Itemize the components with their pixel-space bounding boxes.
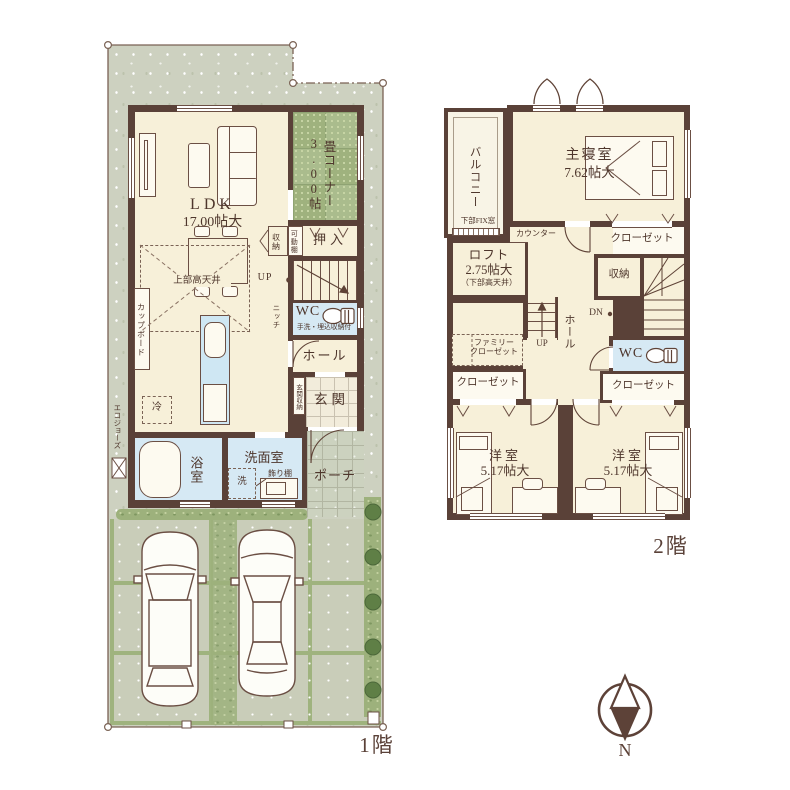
porch-apron xyxy=(307,508,364,517)
wc-note-label: 手洗・埋込収納付 xyxy=(291,324,357,332)
room-size: 7.62帖大 xyxy=(532,165,647,181)
niche-label: ニッチ xyxy=(271,300,280,334)
opening xyxy=(288,341,293,367)
fridge-label: 冷 xyxy=(148,402,166,414)
compass-north-label: N xyxy=(610,740,640,761)
closet-master-label: クローゼット xyxy=(606,233,678,245)
high-ceiling-label: 上部高天井 xyxy=(163,276,231,287)
coffee-table xyxy=(188,143,210,188)
room-name: 洋室 xyxy=(578,448,678,463)
closet-west-label: クローゼット xyxy=(456,377,520,389)
entrance-storage-label: 玄関収納 xyxy=(294,379,302,415)
room-name: LDK xyxy=(160,196,265,215)
hall-label-1f: ホール xyxy=(295,348,355,363)
driveway xyxy=(110,519,381,725)
desk-east xyxy=(575,487,621,514)
loft-label: ロフト 2.75帖大 （下部高天井） xyxy=(453,248,525,287)
hedge-strip-top xyxy=(116,509,308,520)
room-name: 洋室 xyxy=(455,448,555,463)
room-size: 5.17帖大 xyxy=(578,463,678,478)
fix-window-label: 下部FIX窓 xyxy=(449,217,507,226)
window xyxy=(533,105,560,112)
window xyxy=(262,501,295,508)
up-label-1f: UP xyxy=(246,272,284,284)
fix-window-sill xyxy=(452,228,500,236)
room-size: 17.00帖大 xyxy=(160,215,265,232)
kitchen-stove xyxy=(203,384,227,422)
bath-label: 浴室 xyxy=(188,446,203,494)
window xyxy=(684,130,691,198)
window xyxy=(357,308,364,328)
up-label-2f: UP xyxy=(527,338,557,349)
blanket xyxy=(656,487,678,511)
ldk-label: LDK 17.00帖大 xyxy=(160,196,265,231)
hall-2f xyxy=(528,240,558,297)
stairs-dn xyxy=(644,258,684,337)
opening xyxy=(531,399,557,405)
opening xyxy=(573,399,599,405)
wc-label-1f: WC xyxy=(294,304,322,321)
window xyxy=(177,105,232,112)
counter-label: カウンター xyxy=(512,229,560,238)
dn-label: DN xyxy=(585,308,607,319)
high-ceiling-area xyxy=(140,245,250,332)
eco-label: エコジョーズ xyxy=(112,396,121,456)
window xyxy=(447,428,454,498)
vanity-bowl xyxy=(266,482,286,495)
window xyxy=(593,513,665,520)
tatami-label: 畳コーナー 3.00帖 xyxy=(306,126,336,221)
room-note: （下部高天井） xyxy=(453,278,525,287)
washroom-label: 洗面室 xyxy=(232,450,296,465)
kitchen-sink xyxy=(204,322,226,358)
opening xyxy=(255,432,285,438)
window xyxy=(684,428,691,498)
room-size: 3.00帖 xyxy=(306,126,321,221)
opening xyxy=(612,221,672,228)
blanket xyxy=(461,487,483,511)
pillow xyxy=(652,141,667,167)
balcony-label: バルコニー xyxy=(467,133,481,221)
compass-icon xyxy=(599,676,651,740)
window xyxy=(357,136,364,180)
loft-corridor xyxy=(453,303,523,334)
driveway-center-strip xyxy=(211,519,237,725)
opening xyxy=(609,346,613,368)
opening xyxy=(288,190,293,220)
storage-label-1f: 収納 xyxy=(271,228,280,255)
window xyxy=(576,105,603,112)
window xyxy=(180,501,210,508)
porch-label: ポーチ xyxy=(308,468,362,483)
sofa xyxy=(217,126,257,206)
room-size: 5.17帖大 xyxy=(455,463,555,478)
master-label: 主寝室 7.62帖大 xyxy=(532,148,647,180)
storage-label-2f: 収納 xyxy=(604,269,634,281)
opening xyxy=(460,399,516,405)
west-room-label: 洋室 5.17帖大 xyxy=(455,448,555,479)
chair xyxy=(522,478,543,490)
stairs-1f xyxy=(293,261,357,300)
washer-label: 洗 xyxy=(234,477,250,488)
opening xyxy=(565,221,590,227)
room-name: ロフト xyxy=(453,248,525,263)
room-size: 2.75帖大 xyxy=(453,263,525,278)
floor-plan: LDK 17.00帖大 畳コーナー 3.00帖 上部高天井 カップボード 冷 収… xyxy=(0,0,790,790)
entrance-step xyxy=(308,427,357,431)
stairs-to-loft xyxy=(528,297,556,340)
east-room-label: 洋室 5.17帖大 xyxy=(578,448,678,479)
oshiire-label: 押入 xyxy=(303,232,357,247)
tv xyxy=(144,140,148,190)
opening xyxy=(315,372,345,377)
window xyxy=(470,513,542,520)
floor1-label: 1階 xyxy=(352,733,402,758)
deco-shelf-label: 飾り棚 xyxy=(262,469,298,478)
movable-shelf-label: 可動棚 xyxy=(290,227,298,256)
label-line: クローゼット xyxy=(466,347,522,356)
closet-east-label: クローゼット xyxy=(607,380,680,392)
hall-label-2f: ホール xyxy=(562,306,575,358)
cupboard-label: カップボード xyxy=(136,293,145,367)
room-name: 主寝室 xyxy=(532,148,647,165)
chair xyxy=(585,478,606,490)
wc-label-2f: WC xyxy=(617,346,645,363)
opening xyxy=(612,400,674,405)
bathtub xyxy=(139,441,181,498)
window xyxy=(128,138,135,198)
room-name: 畳コーナー xyxy=(321,126,336,221)
floor2-label: 2階 xyxy=(646,534,696,559)
entrance-label: 玄関 xyxy=(306,392,357,408)
family-closet-label: ファミリー クローゼット xyxy=(466,338,522,357)
pillow xyxy=(652,170,667,196)
desk-west xyxy=(512,487,558,514)
hedge-strip-right xyxy=(364,497,381,717)
